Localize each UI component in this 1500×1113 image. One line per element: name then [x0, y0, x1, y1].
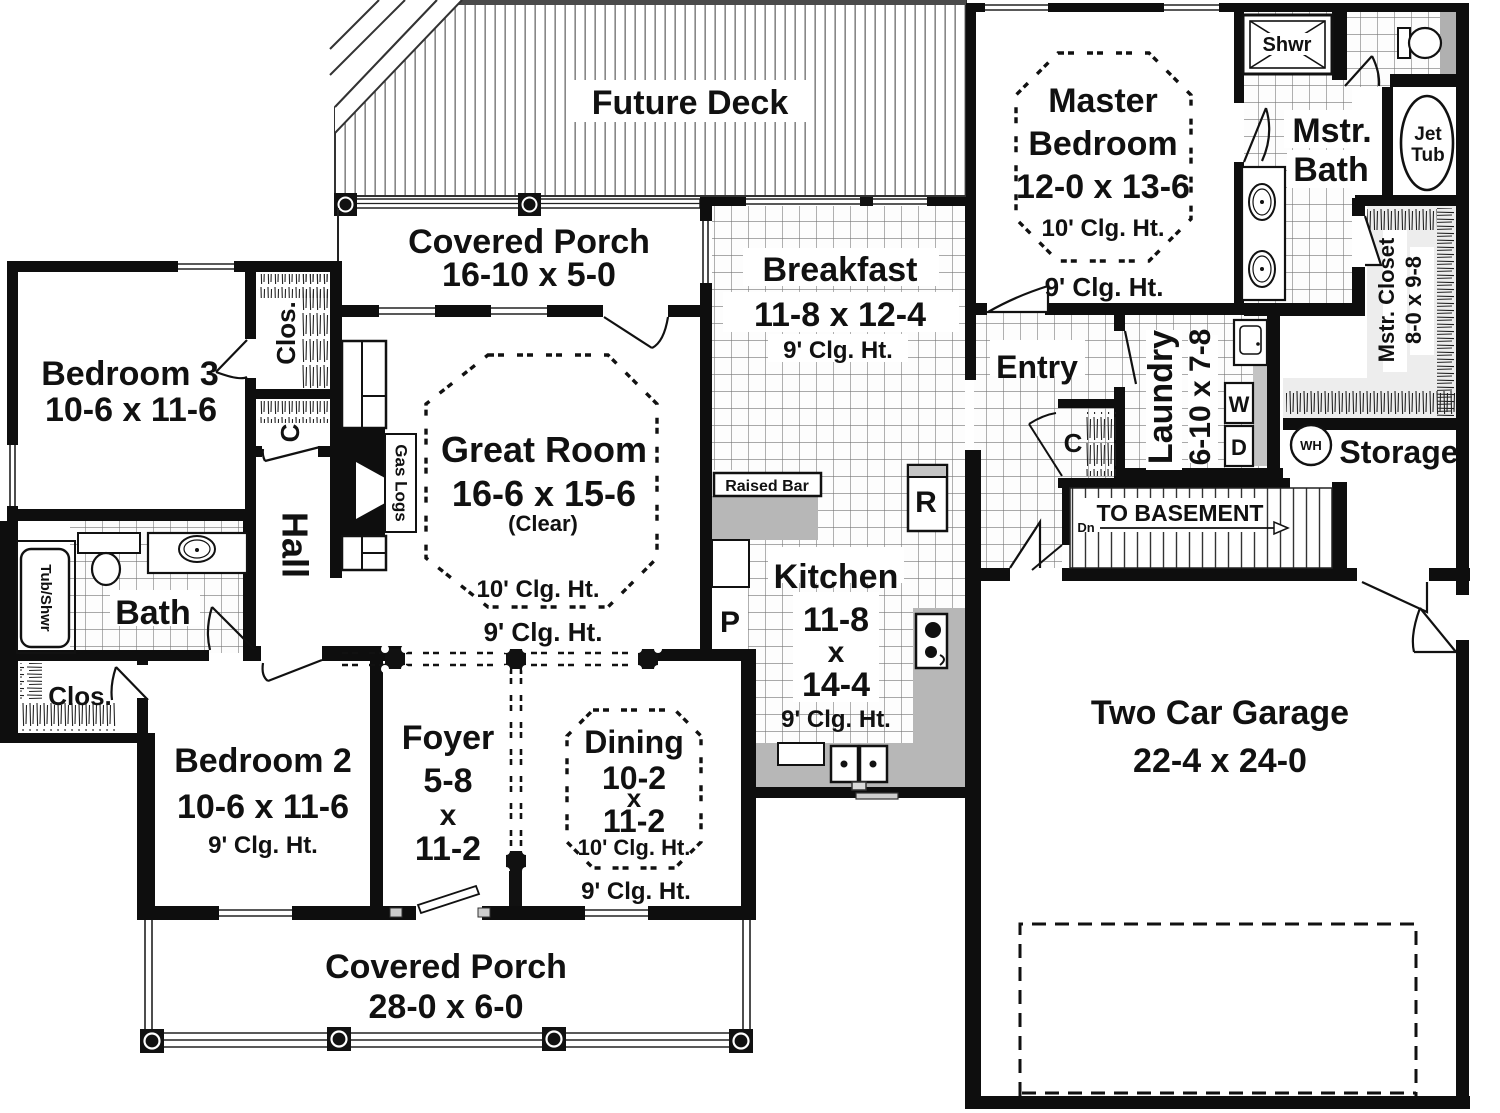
- svg-text:Dn: Dn: [1077, 520, 1094, 535]
- svg-text:WH: WH: [1300, 438, 1322, 453]
- svg-text:10-6 x 11-6: 10-6 x 11-6: [177, 788, 349, 826]
- svg-text:Clos.: Clos.: [48, 681, 112, 711]
- svg-text:9' Clg. Ht.: 9' Clg. Ht.: [783, 337, 893, 364]
- svg-text:16-6 x 15-6: 16-6 x 15-6: [452, 473, 636, 514]
- svg-text:Kitchen: Kitchen: [774, 558, 899, 596]
- svg-text:6-10 x 7-8: 6-10 x 7-8: [1184, 329, 1217, 466]
- svg-text:Two Car Garage: Two Car Garage: [1091, 694, 1349, 732]
- svg-text:Shwr: Shwr: [1263, 34, 1312, 56]
- svg-text:9' Clg. Ht.: 9' Clg. Ht.: [484, 617, 603, 647]
- svg-text:9' Clg. Ht.: 9' Clg. Ht.: [781, 706, 891, 733]
- svg-text:Bedroom 3: Bedroom 3: [41, 355, 219, 393]
- svg-text:C: C: [1064, 428, 1083, 458]
- svg-text:12-0 x 13-6: 12-0 x 13-6: [1016, 168, 1190, 206]
- svg-text:TO BASEMENT: TO BASEMENT: [1097, 500, 1264, 526]
- svg-text:11-8 x 12-4: 11-8 x 12-4: [754, 296, 926, 334]
- svg-text:Great Room: Great Room: [441, 429, 647, 470]
- svg-text:11-2: 11-2: [415, 830, 481, 868]
- svg-text:10' Clg. Ht.: 10' Clg. Ht.: [476, 576, 599, 603]
- svg-text:Laundry: Laundry: [1142, 330, 1180, 464]
- svg-text:5-8: 5-8: [423, 762, 472, 800]
- svg-text:Covered Porch: Covered Porch: [325, 948, 567, 986]
- svg-text:Bath: Bath: [1293, 151, 1369, 189]
- svg-text:Bedroom: Bedroom: [1028, 125, 1177, 163]
- svg-text:16-10 x 5-0: 16-10 x 5-0: [442, 256, 616, 294]
- svg-text:x: x: [440, 799, 457, 832]
- svg-text:D: D: [1231, 435, 1247, 460]
- svg-text:x: x: [828, 636, 845, 669]
- svg-text:10' Clg. Ht.: 10' Clg. Ht.: [578, 835, 691, 860]
- svg-text:Breakfast: Breakfast: [763, 251, 918, 289]
- svg-text:Future Deck: Future Deck: [592, 84, 789, 122]
- svg-text:R: R: [915, 486, 937, 519]
- svg-text:Mstr.: Mstr.: [1292, 112, 1371, 150]
- svg-text:8-0 x 9-8: 8-0 x 9-8: [1401, 256, 1426, 344]
- svg-text:14-4: 14-4: [802, 666, 870, 704]
- svg-text:Master: Master: [1048, 82, 1158, 120]
- svg-text:(Clear): (Clear): [508, 511, 578, 536]
- svg-text:Gas Logs: Gas Logs: [392, 444, 411, 521]
- svg-text:9' Clg. Ht.: 9' Clg. Ht.: [208, 832, 318, 859]
- svg-text:Foyer: Foyer: [402, 719, 495, 757]
- svg-text:10' Clg. Ht.: 10' Clg. Ht.: [1041, 215, 1164, 242]
- svg-text:Storage: Storage: [1339, 434, 1458, 470]
- svg-text:Dining: Dining: [584, 724, 684, 760]
- svg-text:Raised Bar: Raised Bar: [725, 478, 809, 495]
- svg-text:C: C: [275, 423, 305, 442]
- svg-text:P: P: [720, 606, 740, 639]
- svg-text:Tub: Tub: [1411, 145, 1444, 166]
- svg-text:22-4 x 24-0: 22-4 x 24-0: [1133, 742, 1307, 780]
- svg-text:Entry: Entry: [996, 349, 1078, 385]
- svg-text:10-6 x 11-6: 10-6 x 11-6: [45, 391, 217, 429]
- svg-text:9' Clg. Ht.: 9' Clg. Ht.: [1045, 272, 1164, 302]
- svg-text:Bedroom 2: Bedroom 2: [174, 742, 352, 780]
- svg-text:11-8: 11-8: [803, 601, 869, 639]
- svg-text:9' Clg. Ht.: 9' Clg. Ht.: [581, 878, 691, 905]
- svg-text:Hall: Hall: [274, 512, 315, 578]
- svg-text:11-2: 11-2: [603, 803, 665, 839]
- svg-text:Bath: Bath: [115, 594, 191, 632]
- svg-text:28-0 x 6-0: 28-0 x 6-0: [369, 988, 524, 1026]
- svg-text:Tub/Shwr: Tub/Shwr: [37, 564, 54, 631]
- svg-text:Mstr. Closet: Mstr. Closet: [1374, 237, 1399, 362]
- svg-text:W: W: [1229, 392, 1250, 417]
- svg-text:Jet: Jet: [1414, 124, 1442, 145]
- svg-text:Clos.: Clos.: [271, 301, 301, 365]
